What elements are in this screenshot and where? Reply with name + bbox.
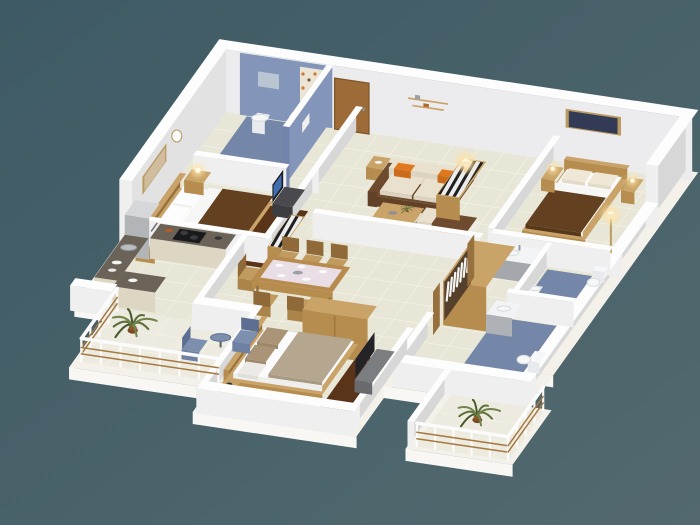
wall-clock-icon — [172, 130, 182, 142]
kitchen-dish-2 — [108, 269, 116, 272]
table-lamp-shade — [460, 161, 471, 166]
wall-balcony-right-west — [408, 421, 415, 447]
dining-chair-back-4 — [253, 291, 270, 307]
shelf-decor-1 — [415, 95, 420, 100]
sofa-arm-left — [368, 192, 377, 208]
dining-plate-5 — [302, 278, 310, 281]
dining-plate-3 — [319, 270, 327, 273]
dining-chair-back-1 — [282, 236, 299, 252]
bath-b-sink — [497, 306, 510, 311]
kitchen-kettle — [214, 236, 222, 239]
cooktop-burner-1 — [180, 231, 188, 235]
bath-b-toilet-tank — [528, 361, 540, 374]
bedroom3-lamp-right-core — [630, 178, 635, 183]
floor-plan-render — [0, 0, 700, 525]
floor-lamp-shade — [605, 214, 616, 218]
dining-plate-4 — [277, 274, 285, 277]
bedroom3-nightstand-right — [621, 191, 634, 205]
kitchen-pot-orange — [165, 229, 173, 232]
bath-b-toilet-bowl — [517, 355, 530, 364]
coffee-table-bowl — [388, 211, 397, 214]
balcony-table-top — [211, 334, 231, 342]
ensuite-sink-pedestal — [252, 120, 265, 134]
dining-chair-back-2 — [307, 240, 324, 256]
bedroom3-nightstand-left — [541, 179, 554, 193]
dining-plate-2 — [297, 265, 305, 268]
floor-plan-3d-svg — [0, 0, 700, 525]
master-lamp-back-core — [195, 168, 200, 173]
bath-b-counter — [486, 314, 512, 337]
kitchen-dish-1 — [112, 261, 122, 265]
dining-chair-back-3 — [331, 243, 348, 259]
bath-a-sink-basin — [530, 286, 541, 290]
door-knob-icon — [362, 108, 365, 111]
side-table-decor — [375, 161, 383, 164]
dining-centerpiece — [293, 271, 303, 275]
bedroom3-lamp-left-core — [550, 166, 555, 171]
bath-a-toilet-bowl — [587, 278, 600, 286]
dining-plate-1 — [275, 264, 283, 267]
wall-right-tall — [646, 164, 659, 228]
kitchen-sink — [121, 244, 137, 250]
media-unit — [436, 195, 460, 221]
ensuite-sink-basin — [252, 114, 269, 121]
ensuite-mirror — [258, 71, 279, 89]
dining-chair-back-5 — [287, 296, 304, 312]
kitchen-bowl-white — [128, 279, 137, 283]
cooktop-burner-2 — [190, 235, 198, 239]
